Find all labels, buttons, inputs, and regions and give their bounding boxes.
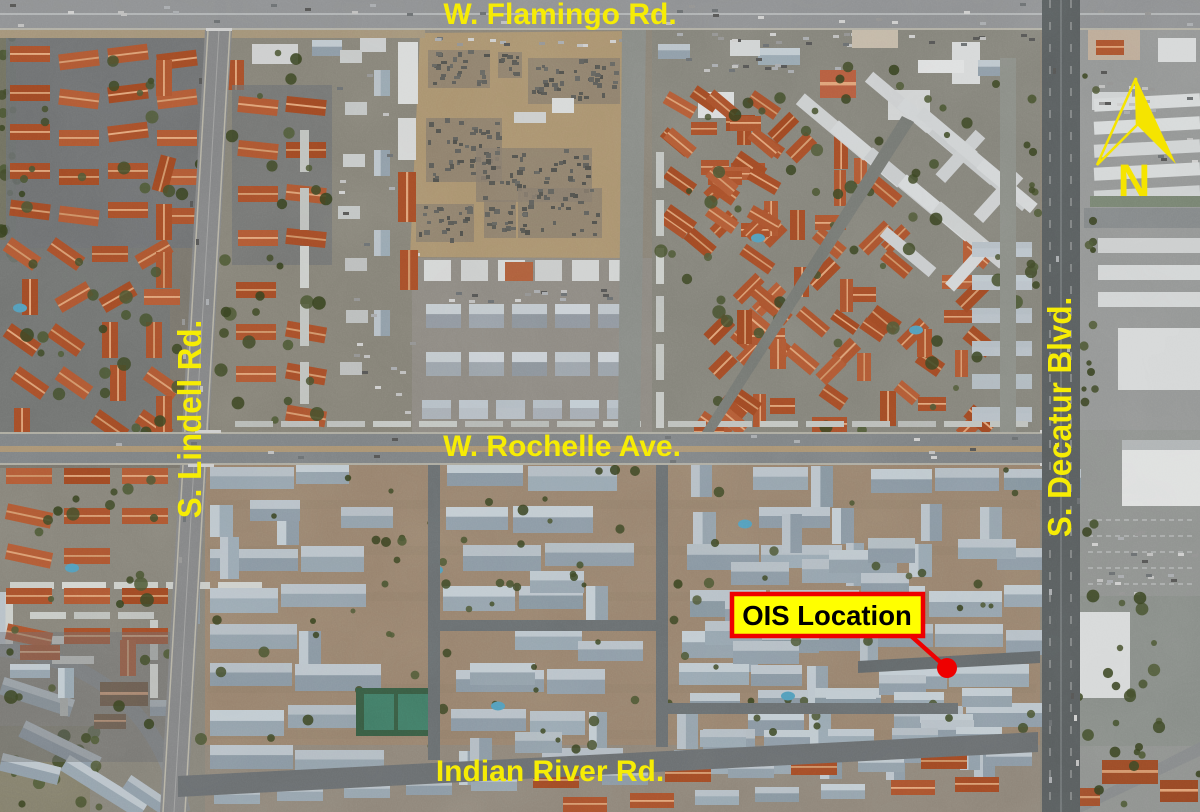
svg-text:W. Rochelle Ave.: W. Rochelle Ave. [443,430,681,463]
svg-text:OIS Location: OIS Location [742,600,912,631]
svg-text:N: N [1118,155,1151,206]
svg-text:W. Flamingo Rd.: W. Flamingo Rd. [443,0,676,31]
svg-text:S. Lindell Rd.: S. Lindell Rd. [171,320,208,518]
svg-text:Indian River Rd.: Indian River Rd. [436,755,664,788]
svg-text:S. Decatur Blvd.: S. Decatur Blvd. [1041,297,1078,537]
